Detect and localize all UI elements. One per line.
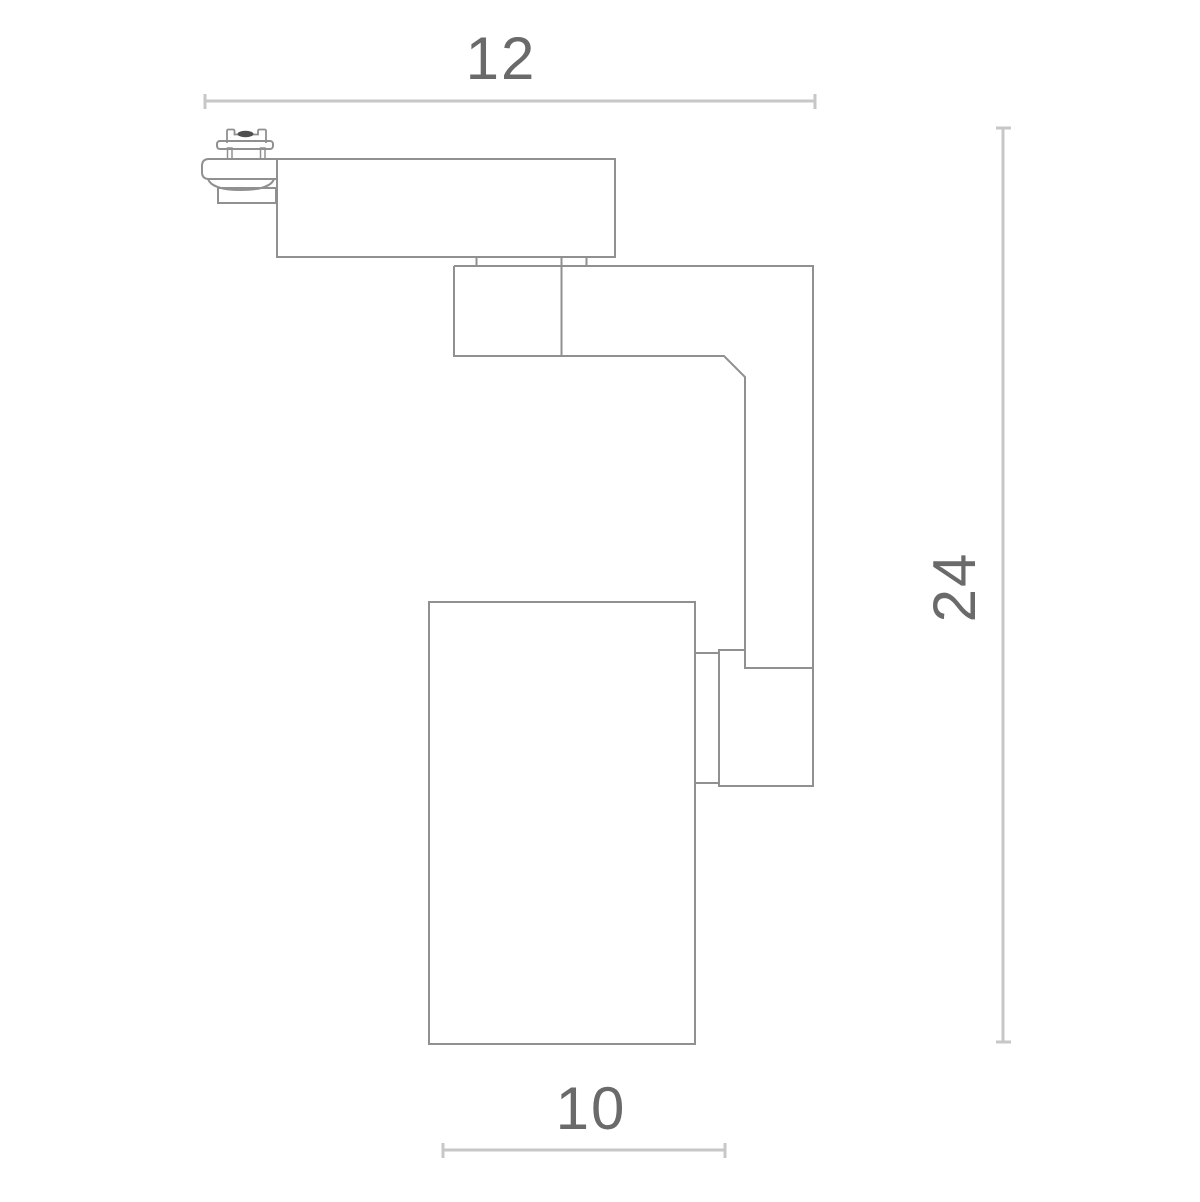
track-plug-body [202,159,277,179]
lamp-body [429,602,695,1044]
dimension-lines-group [205,94,1011,1158]
arm-inner-edge [454,266,812,668]
arm-and-mount-outline [454,266,813,786]
track-spotlight-drawing [0,0,1200,1202]
technical-drawing-page: 12 24 10 [0,0,1200,1202]
lamp-mount-neck [695,653,719,783]
adapter-housing [277,159,615,257]
fixture-outline-group [202,130,813,1045]
plug-screw-head [238,131,254,137]
